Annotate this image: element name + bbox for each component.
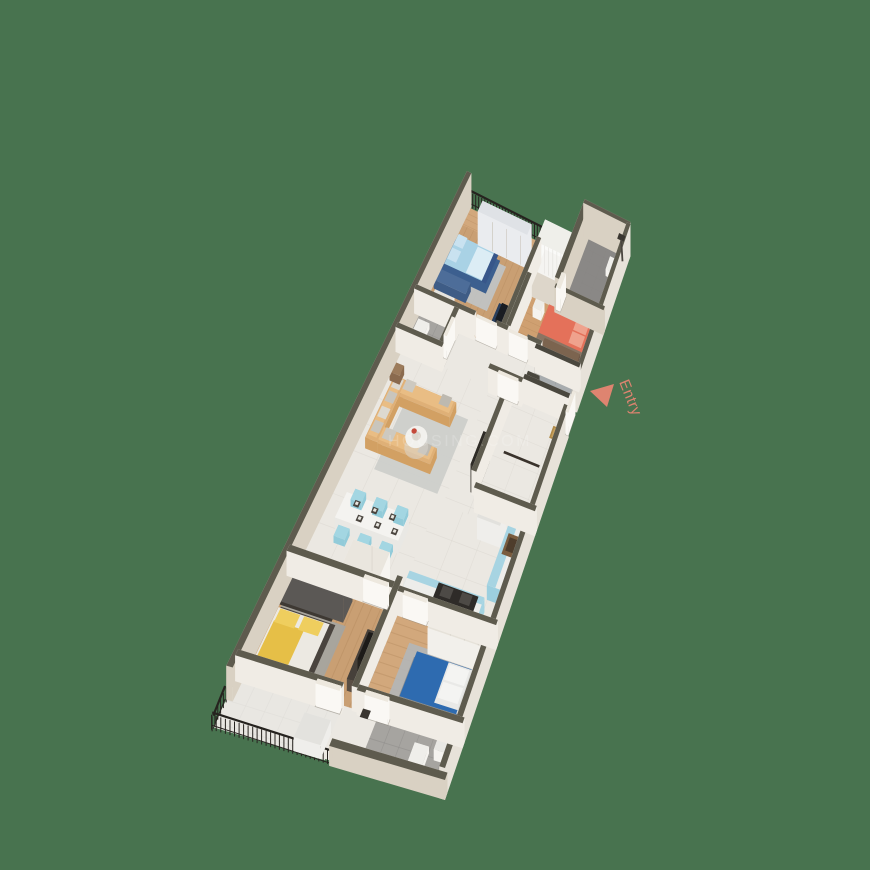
svg-text:HOUSING.COM: HOUSING.COM (388, 433, 532, 450)
